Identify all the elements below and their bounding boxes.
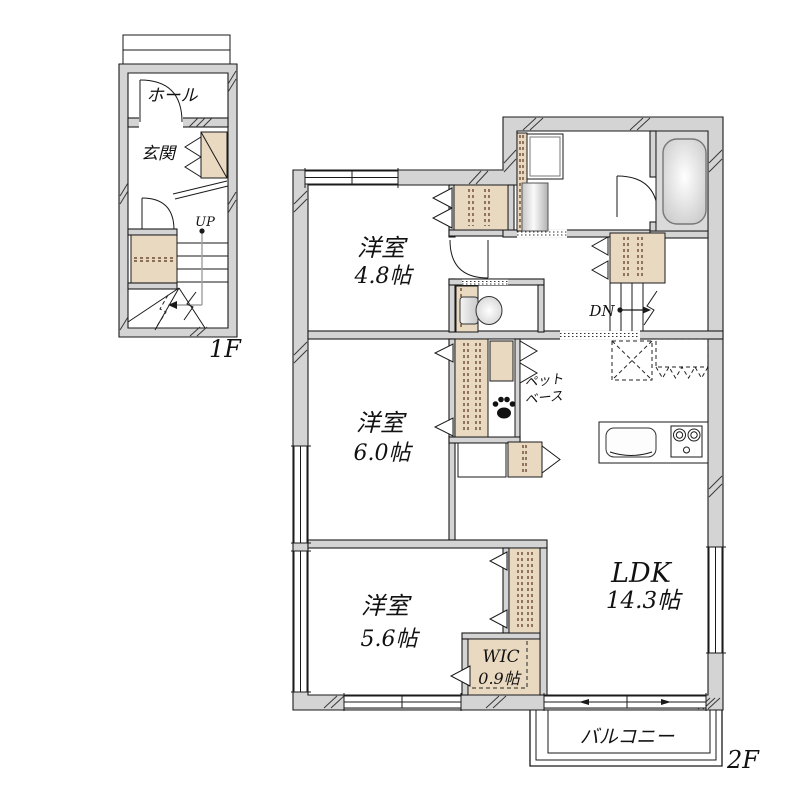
ldk-name: LDK [610, 558, 673, 589]
room-label-bedroom2: 洋室 6.0帖 [354, 409, 414, 466]
1f-closet [128, 229, 177, 289]
floor-1f: ホール 玄関 UP 1F [119, 35, 242, 363]
pet-base-line2: ベース [524, 389, 564, 408]
room-label-bedroom3: 洋室 5.6帖 [361, 592, 421, 652]
bathtub [663, 139, 706, 224]
entrance-side-door-arc [142, 198, 174, 230]
door-arc-bedroom1 [450, 240, 488, 278]
washroom [517, 133, 658, 231]
balcony-label: バルコニー [580, 726, 676, 748]
stove-icon [671, 426, 702, 457]
floorplan-canvas: ホール 玄関 UP 1F [0, 0, 800, 800]
closet-hall [592, 233, 665, 283]
room-label-ldk: LDK 14.3帖 [606, 558, 683, 614]
window-bedroom3-bottom [344, 693, 461, 711]
1f-wall-hatches [120, 71, 236, 336]
floor2-label: 2F [726, 746, 760, 774]
toilet-icon [460, 297, 502, 325]
ldk-size: 14.3帖 [606, 588, 683, 614]
closet-bedroom1 [433, 185, 508, 230]
stairs-down [610, 283, 657, 331]
entrance-step [173, 181, 228, 199]
bathroom [656, 131, 708, 231]
bedroom1-name: 洋室 [357, 234, 408, 262]
kitchen-sink [606, 428, 656, 457]
stairs-up-label: UP [195, 215, 215, 230]
ldk-counter [458, 443, 506, 477]
window-balcony-sliding [544, 693, 706, 711]
bedroom3-size: 5.6帖 [361, 627, 421, 652]
floor-2f: 洋室 4.8帖 洋室 6.0帖 洋室 5.6帖 LDK 14.3帖 WIC 0.… [291, 117, 760, 774]
stairs-up-arrowhead [168, 301, 177, 309]
floorplan-drawing: ホール 玄関 UP 1F [0, 0, 800, 800]
stairs-down-label: DN [588, 302, 615, 320]
cupboard-space [656, 339, 708, 378]
ldk-cabinet [508, 442, 560, 477]
wic-name: WIC [482, 647, 519, 667]
toilet-room [456, 286, 502, 332]
pet-base-line1: ペット [524, 372, 564, 391]
bedroom2-name: 洋室 [356, 409, 407, 437]
entrance-label: 玄関 [141, 144, 177, 164]
room-label-bedroom1: 洋室 4.8帖 [354, 234, 415, 289]
refrigerator-space [612, 341, 652, 380]
kitchen-counter [599, 422, 708, 463]
closet-bedroom2 [435, 339, 488, 437]
floor1-label: 1F [209, 335, 242, 363]
wic-size: 0.9帖 [478, 669, 521, 688]
bedroom3-name: 洋室 [361, 592, 412, 620]
bedroom2-size: 6.0帖 [354, 441, 414, 466]
door-arc-washroom [617, 176, 658, 217]
porch-steps [123, 35, 230, 65]
hall-label: ホール [147, 86, 199, 106]
bedroom1-size: 4.8帖 [354, 264, 415, 289]
pet-base-label: ペット ベース [522, 372, 566, 408]
closet-bedroom3 [490, 548, 540, 633]
washing-machine-pan [527, 134, 563, 179]
vanity-sink [522, 183, 548, 231]
1f-divider-opening [139, 117, 183, 129]
shoe-cabinet [185, 132, 227, 178]
